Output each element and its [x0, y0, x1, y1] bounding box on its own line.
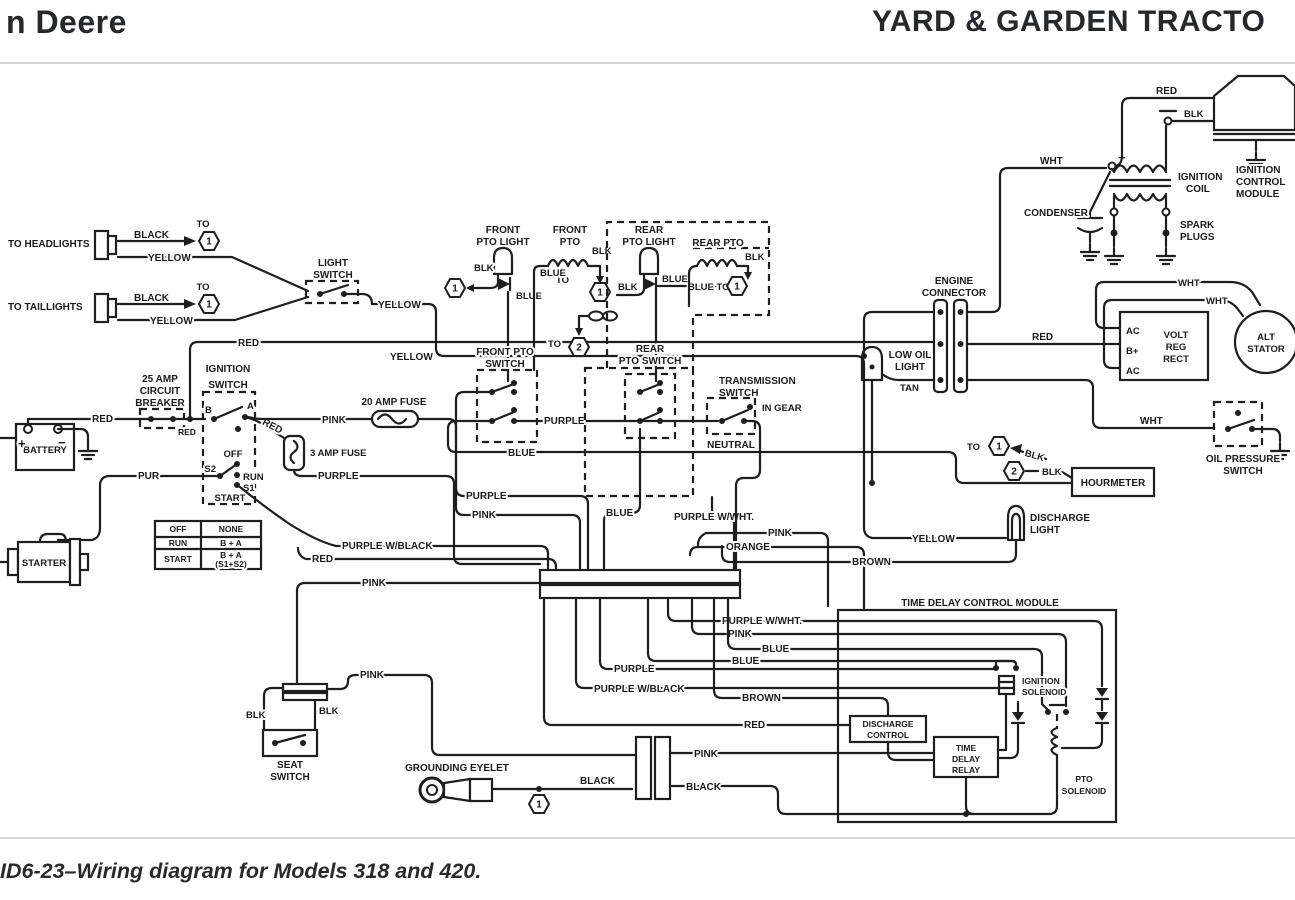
page-title: YARD & GARDEN TRACTO: [872, 5, 1265, 38]
purple-w-black-label: PURPLE W/BLACK: [342, 541, 433, 552]
spark-plugs-label: SPARK: [1180, 220, 1215, 231]
svg-text:1: 1: [206, 237, 212, 248]
yellow-wire-label: YELLOW: [390, 352, 433, 363]
starter-label: STARTER: [22, 558, 66, 569]
position-run: RUN: [243, 472, 264, 483]
ignition-switch: IGNITION SWITCH B A OFF S2 RUN S1 START …: [203, 364, 284, 504]
battery-minus-sign: −: [58, 435, 66, 450]
rear-pto-switch-label: REAR: [636, 344, 665, 355]
discharge-control-label: CONTROL: [867, 730, 909, 740]
starter: STARTER: [0, 534, 88, 585]
light-switch: LIGHT SWITCH: [306, 258, 358, 303]
connector-ref-1: 1: [529, 795, 549, 813]
terminal-ac: AC: [1126, 366, 1140, 377]
blue-wire-label: BLUE: [540, 268, 566, 279]
blk-wire-label: BLK: [1184, 109, 1204, 120]
ignition-solenoid-label: IGNITION: [1022, 676, 1060, 686]
blk-wire-label: BLK: [474, 263, 494, 274]
front-pto-switch-label: SWITCH: [485, 359, 524, 370]
in-gear-label: IN GEAR: [762, 403, 802, 414]
yellow-wire-label: YELLOW: [150, 316, 193, 327]
black-wire-label: BLACK: [686, 782, 722, 793]
purple-wire-label: PURPLE: [318, 471, 359, 482]
grounding-eyelet-label: GROUNDING EYELET: [405, 763, 509, 774]
pink-wire-label: PINK: [362, 578, 387, 589]
table-cell: START: [164, 554, 193, 564]
terminal-bplus: B+: [1126, 346, 1139, 357]
brown-wire-label: BROWN: [742, 693, 781, 704]
ignition-coil-label: COIL: [1186, 184, 1210, 195]
tdcm-label: TIME DELAY CONTROL MODULE: [901, 598, 1059, 609]
time-delay-control-module: TIME DELAY CONTROL MODULE IGNITION SOLEN…: [838, 598, 1116, 822]
condenser: CONDENSER: [1024, 172, 1110, 260]
blue-wire-label: BLUE: [762, 644, 790, 655]
connector-ref-1: 1: [445, 279, 465, 297]
taillights-label: TO TAILLIGHTS: [8, 302, 83, 313]
table-cell: OFF: [170, 524, 187, 534]
ignition-coil: + IGNITION COIL: [1109, 126, 1223, 216]
terminal-ac: AC: [1126, 326, 1140, 337]
front-pto-coil: FRONT PTO BLUE BLK 1 TO 2: [534, 225, 617, 370]
low-oil-light-label: LIGHT: [895, 362, 925, 373]
pto-solenoid-label: PTO: [1075, 774, 1093, 784]
low-oil-light: LOW OIL LIGHT TAN: [862, 347, 934, 483]
figure-caption: ID6-23–Wiring diagram for Models 318 and…: [0, 859, 481, 883]
alt-stator-label: STATOR: [1247, 344, 1285, 355]
condenser-label: CONDENSER: [1024, 208, 1089, 219]
to-label: TO: [196, 282, 209, 293]
terminal-s2: S2: [204, 464, 216, 475]
table-cell: RUN: [169, 538, 187, 548]
light-switch-label: LIGHT: [318, 258, 348, 269]
engine-connector-label: ENGINE: [935, 276, 974, 287]
brown-wire-label: BROWN: [852, 557, 891, 568]
brand-logo-text: n Deere: [6, 4, 127, 40]
volt-reg-label: REG: [1166, 342, 1187, 353]
wire-purple-w-wht-bottom-row: PURPLE W/WHT.: [668, 598, 1102, 686]
red-wire-label: RED: [92, 414, 113, 425]
yellow-wire-label: YELLOW: [912, 534, 955, 545]
svg-text:1: 1: [452, 284, 458, 295]
time-delay-relay-label: TIME: [956, 743, 977, 753]
wire-purple-row: PURPLE: [514, 416, 718, 427]
blue-wire-label: BLUE: [508, 448, 536, 459]
red-wire-label: RED: [1032, 332, 1053, 343]
ignition-logic-table: OFF NONE RUN B + A START B + A (S1+S2): [155, 521, 261, 569]
yellow-wire-label: YELLOW: [378, 300, 421, 311]
svg-text:2: 2: [1011, 467, 1017, 478]
volt-reg-label: VOLT: [1164, 330, 1189, 341]
neutral-label: NEUTRAL: [707, 440, 755, 451]
discharge-light-label: LIGHT: [1030, 525, 1060, 536]
blue-wire-label: BLUE: [732, 656, 760, 667]
low-oil-light-label: LOW OIL: [889, 350, 932, 361]
purple-wire-label: PURPLE: [544, 416, 585, 427]
purple-w-wht-label: PURPLE W/WHT.: [674, 512, 754, 523]
icm-label: CONTROL: [1236, 177, 1285, 188]
rear-pto-light-label: PTO LIGHT: [622, 237, 675, 248]
connector-ref-1: 1: [199, 295, 219, 313]
blk-wire-label: BLK: [618, 282, 638, 293]
pink-wire-label: PINK: [694, 749, 719, 760]
discharge-light-label: DISCHARGE: [1030, 513, 1090, 524]
pink-wire-label: PINK: [360, 670, 385, 681]
front-pto-label: PTO: [560, 237, 581, 248]
wht-wire-label: WHT: [1140, 416, 1163, 427]
red-wire-label: RED: [312, 554, 333, 565]
pur-wire-label: PUR: [138, 471, 160, 482]
battery: BATTERY + −: [0, 419, 97, 470]
transmission-switch-label: TRANSMISSION: [719, 376, 796, 387]
connector-ref-2: 2: [569, 338, 589, 356]
wht-wire-label: WHT: [1178, 278, 1200, 289]
front-pto-label: FRONT: [553, 225, 587, 236]
connector-ref-1: 1: [199, 232, 219, 250]
circuit-breaker-label: BREAKER: [135, 398, 185, 409]
position-start: START: [215, 493, 246, 504]
svg-text:1: 1: [996, 442, 1002, 453]
seat-switch-label: SWITCH: [270, 772, 309, 783]
connector-ref-1: 1: [727, 277, 747, 295]
svg-text:1: 1: [536, 800, 542, 811]
wht-wire-label: WHT: [1040, 156, 1063, 167]
icm-label: IGNITION: [1236, 165, 1280, 176]
diodes: [1012, 688, 1108, 748]
spark-plugs-label: PLUGS: [1180, 232, 1215, 243]
circuit-breaker: 25 AMP CIRCUIT BREAKER RED RED: [75, 374, 205, 437]
time-delay-relay-label: RELAY: [952, 765, 980, 775]
oil-pressure-switch-label: OIL PRESSURE: [1206, 454, 1281, 465]
blk-wire-label: BLK: [246, 710, 266, 721]
red-wire-label: RED: [178, 427, 196, 437]
hourmeter: HOURMETER TO 1 BLK 2 BLK: [967, 437, 1154, 496]
ignition-solenoid-label: SOLENOID: [1022, 687, 1066, 697]
black-wire-label: BLACK: [134, 230, 170, 241]
to-label: TO: [196, 219, 209, 230]
connector-ref-2: 2: [1004, 462, 1024, 480]
discharge-control-label: DISCHARGE: [862, 719, 913, 729]
pink-wire-label: PINK: [472, 510, 497, 521]
to-label: TO: [548, 339, 561, 350]
blk-wire-label: BLK: [319, 706, 339, 717]
pink-wire-label: PINK: [768, 528, 793, 539]
purple-wire-label: PURPLE: [614, 664, 655, 675]
connector-ref-1: 1: [989, 437, 1009, 455]
red-wire-label: RED: [238, 338, 259, 349]
blk-wire-label: BLK: [592, 246, 612, 257]
terminal-b: B: [205, 405, 212, 416]
purple-wire-label: PURPLE: [466, 491, 507, 502]
hourmeter-label: HOURMETER: [1081, 478, 1146, 489]
voltage-regulator: AC B+ AC VOLT REG RECT WHT WHT: [1096, 278, 1260, 380]
to-label: TO: [967, 442, 980, 453]
rear-pto-label: REAR PTO: [692, 238, 744, 249]
red-wire-label: RED: [1156, 86, 1177, 97]
headlights-label: TO HEADLIGHTS: [8, 239, 90, 250]
wiring-diagram-canvas: n Deere YARD & GARDEN TRACTO ID6-23–Wiri…: [0, 0, 1295, 900]
blue-wire-label: BLUE: [516, 291, 542, 302]
circuit-breaker-label: 25 AMP: [142, 374, 178, 385]
blk-wire-label: BLK: [1023, 448, 1045, 464]
time-delay-relay-label: DELAY: [952, 754, 980, 764]
purple-w-black-label: PURPLE W/BLACK: [594, 684, 685, 695]
svg-text:1: 1: [206, 300, 212, 311]
purple-w-wht-label: PURPLE W/WHT.: [722, 616, 802, 627]
front-pto-switch-label: FRONT PTO: [476, 347, 534, 358]
volt-reg-label: RECT: [1163, 354, 1189, 365]
oil-pressure-switch: OIL PRESSURE SWITCH: [1206, 402, 1289, 477]
pto-solenoid-label: SOLENOID: [1062, 786, 1106, 796]
front-pto-light-label: PTO LIGHT: [476, 237, 529, 248]
discharge-light: DISCHARGE LIGHT: [1008, 506, 1090, 540]
black-wire-label: BLACK: [580, 776, 616, 787]
wire-pink-row-seat: PINK: [297, 578, 540, 684]
seat-switch-label: SEAT: [277, 760, 303, 771]
bus-bar-connector: [540, 570, 740, 598]
scanned-wiring-diagram-page: n Deere YARD & GARDEN TRACTO ID6-23–Wiri…: [0, 0, 1295, 900]
yellow-wire-label: YELLOW: [148, 253, 191, 264]
wht-wire-label: WHT: [1206, 296, 1228, 307]
circuit-breaker-label: CIRCUIT: [140, 386, 181, 397]
pto-solenoid: PTO SOLENOID: [1045, 705, 1106, 814]
rear-pto-switch-label: PTO SWITCH: [619, 356, 682, 367]
tan-wire-label: TAN: [900, 383, 919, 394]
orange-wire-label: ORANGE: [726, 542, 770, 553]
front-pto-light-label: FRONT: [486, 225, 520, 236]
rear-pto-light-label: REAR: [635, 225, 664, 236]
terminal-a: A: [247, 401, 254, 412]
blue-wire-label: BLUE: [662, 274, 688, 285]
transmission-switch: TRANSMISSION SWITCH IN GEAR NEUTRAL: [707, 376, 802, 570]
ignition-coil-label: IGNITION: [1178, 172, 1222, 183]
fuse-3amp-label: 3 AMP FUSE: [310, 448, 367, 459]
blk-wire-label: BLK: [745, 252, 765, 263]
red-wire-label: RED: [744, 720, 765, 731]
svg-text:1: 1: [734, 282, 740, 293]
taillights-connector: TO TAILLIGHTS TO 1 BLACK YELLOW: [8, 282, 308, 327]
light-switch-label: SWITCH: [313, 270, 352, 281]
icm-label: MODULE: [1236, 189, 1280, 200]
table-cell: (S1+S2): [215, 559, 247, 569]
svg-text:2: 2: [576, 343, 582, 354]
oil-pressure-switch-label: SWITCH: [1223, 466, 1262, 477]
black-wire-label: BLACK: [134, 293, 170, 304]
engine-connector-label: CONNECTOR: [922, 288, 987, 299]
battery-plus-sign: +: [18, 436, 26, 451]
ignition-switch-label: SWITCH: [208, 380, 247, 391]
table-cell: B + A: [220, 538, 242, 548]
alternator-stator: ALT STATOR: [1235, 311, 1295, 373]
wire-red-trunk: RED: [187, 338, 934, 422]
svg-text:1: 1: [597, 288, 603, 299]
grounding-eyelet: GROUNDING EYELET 1 BLACK: [405, 763, 632, 813]
blue-to-label: BLUE TO: [688, 282, 730, 293]
headlights-connector: TO HEADLIGHTS TO 1 BLACK YELLOW: [8, 219, 308, 291]
blue-wire-label: BLUE: [606, 508, 634, 519]
pink-wire-label: PINK: [322, 415, 347, 426]
spark-plugs: SPARK PLUGS: [1105, 216, 1215, 264]
table-cell: NONE: [219, 524, 244, 534]
alt-stator-label: ALT: [1257, 332, 1275, 343]
pink-wire-label: PINK: [728, 629, 753, 640]
wire-red-bottom-row: RED: [544, 598, 850, 731]
blk-wire-label: BLK: [1042, 467, 1062, 478]
ignition-switch-label: IGNITION: [206, 364, 250, 375]
position-off: OFF: [224, 449, 243, 460]
fuse-20amp-label: 20 AMP FUSE: [361, 397, 426, 408]
